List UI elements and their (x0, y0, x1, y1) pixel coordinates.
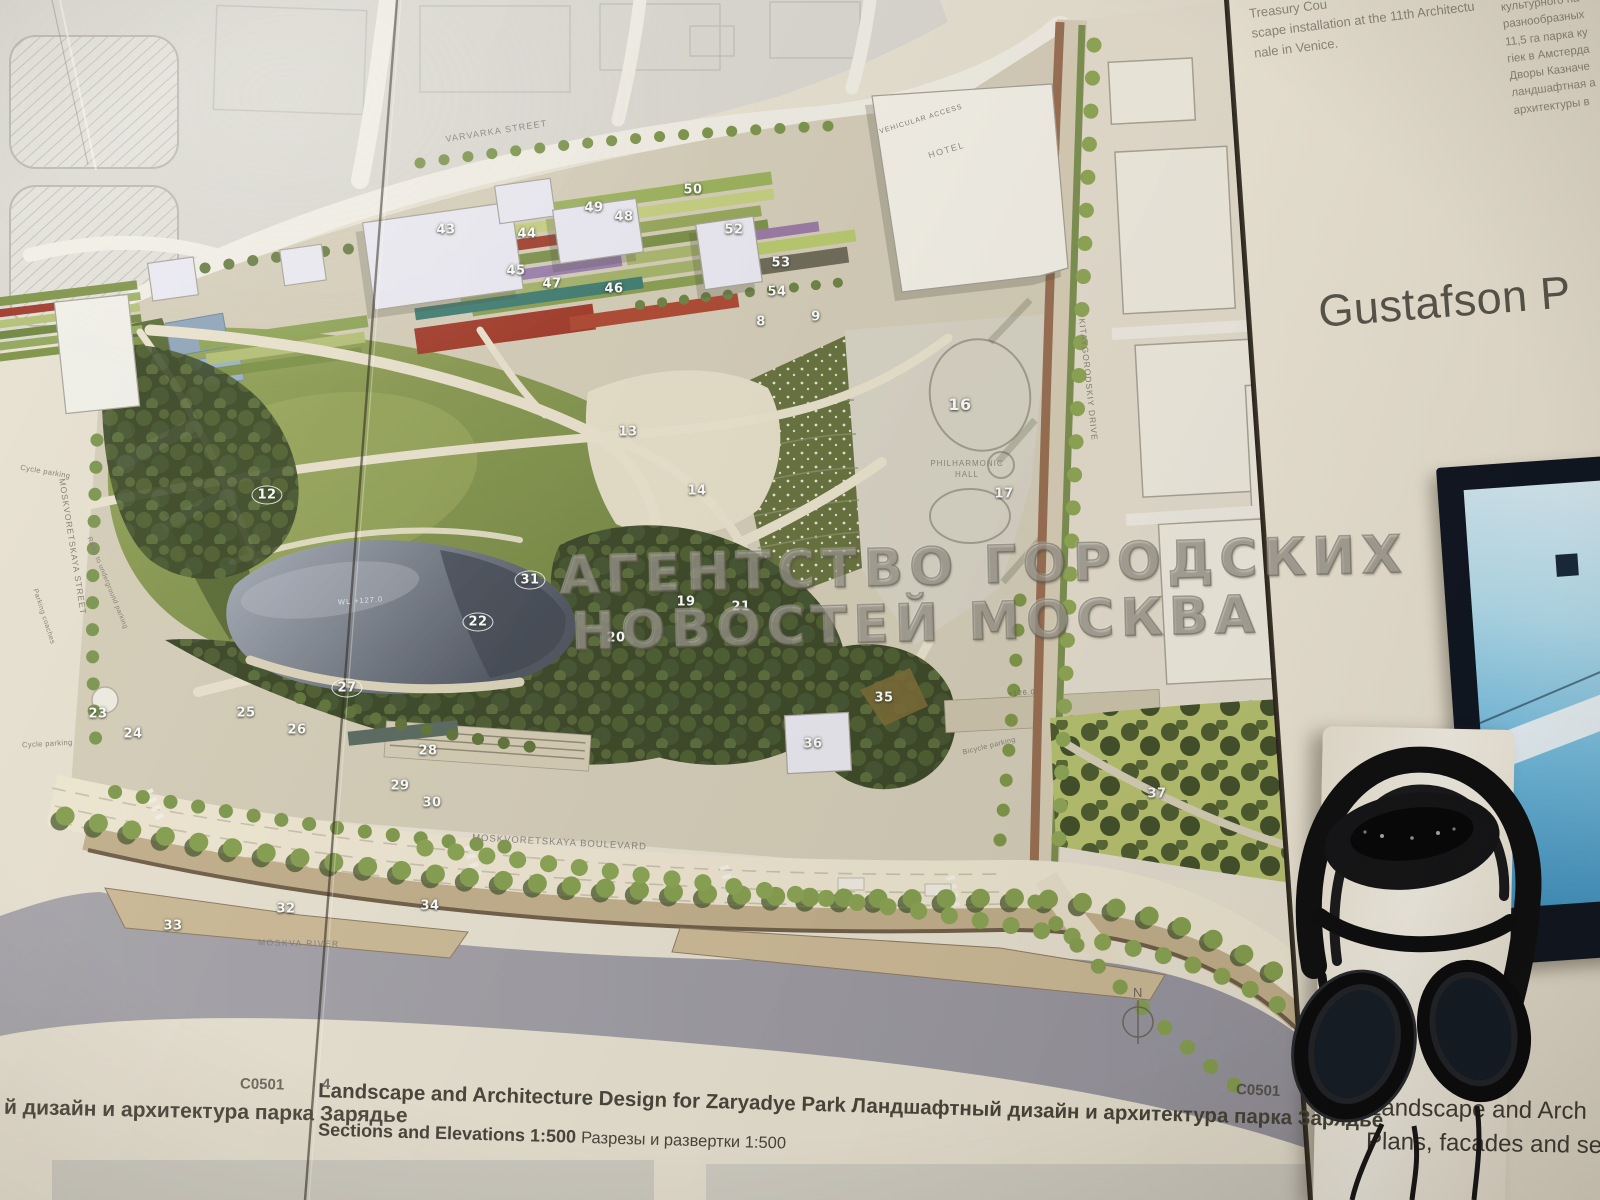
plan-marker: 37 (1147, 788, 1166, 801)
plan-marker: 52 (724, 224, 743, 237)
plan-marker: 32 (276, 903, 295, 916)
plan-marker: 30 (422, 797, 441, 810)
headphone-left-cup (1275, 956, 1432, 1135)
plan-marker: 44 (517, 228, 536, 241)
plan-marker: 24 (123, 728, 142, 741)
plan-marker: 28 (418, 745, 437, 758)
plan-marker: 36 (803, 738, 822, 751)
plan-marker: 22 (462, 613, 493, 632)
north-label: N (1133, 986, 1142, 1000)
plan-marker: 33 (163, 920, 182, 933)
plan-marker: 54 (767, 286, 786, 299)
plan-marker: 47 (542, 278, 561, 291)
plan-marker: 27 (331, 679, 362, 698)
plan-marker: 14 (687, 485, 706, 498)
plan-marker: 49 (584, 202, 603, 215)
plan-marker: 25 (236, 707, 255, 720)
plan-marker: 29 (390, 780, 409, 793)
plan-marker: 26 (287, 724, 306, 737)
plan-marker: 43 (436, 224, 455, 237)
plan-marker: 23 (88, 708, 107, 721)
screen-render-building (1556, 554, 1579, 577)
plan-marker: 13 (618, 426, 637, 439)
right-board-intro-ru: культурного на разнообразных 11,5 га пар… (1500, 0, 1600, 120)
plan-marker: 50 (683, 184, 702, 197)
headphones (1262, 726, 1562, 1200)
philharmonic-label-line1: PHILHARMONIC (930, 460, 1003, 469)
plan-marker: 53 (771, 257, 790, 270)
philharmonic-label-line2: HALL (955, 471, 979, 480)
plan-marker: 9 (811, 311, 821, 324)
plan-marker: 48 (614, 211, 633, 224)
plan-marker: 46 (604, 283, 623, 296)
plan-marker: 12 (251, 486, 282, 505)
sheet-code-left: C0501 (240, 1075, 285, 1093)
plan-marker: 17 (994, 488, 1013, 501)
plan-marker: 45 (506, 265, 525, 278)
headphone-wires (1352, 1106, 1479, 1200)
plan-marker: 8 (756, 316, 766, 329)
exhibition-photo: VARVARKA STREET MOSKVORETSKAYA STREET MO… (0, 0, 1600, 1200)
plan-marker: 16 (948, 397, 971, 413)
river-label: MOSKVA RIVER (258, 938, 340, 949)
plan-marker: 31 (514, 571, 545, 590)
plan-marker: 35 (874, 692, 893, 705)
plan-marker: 34 (420, 900, 439, 913)
